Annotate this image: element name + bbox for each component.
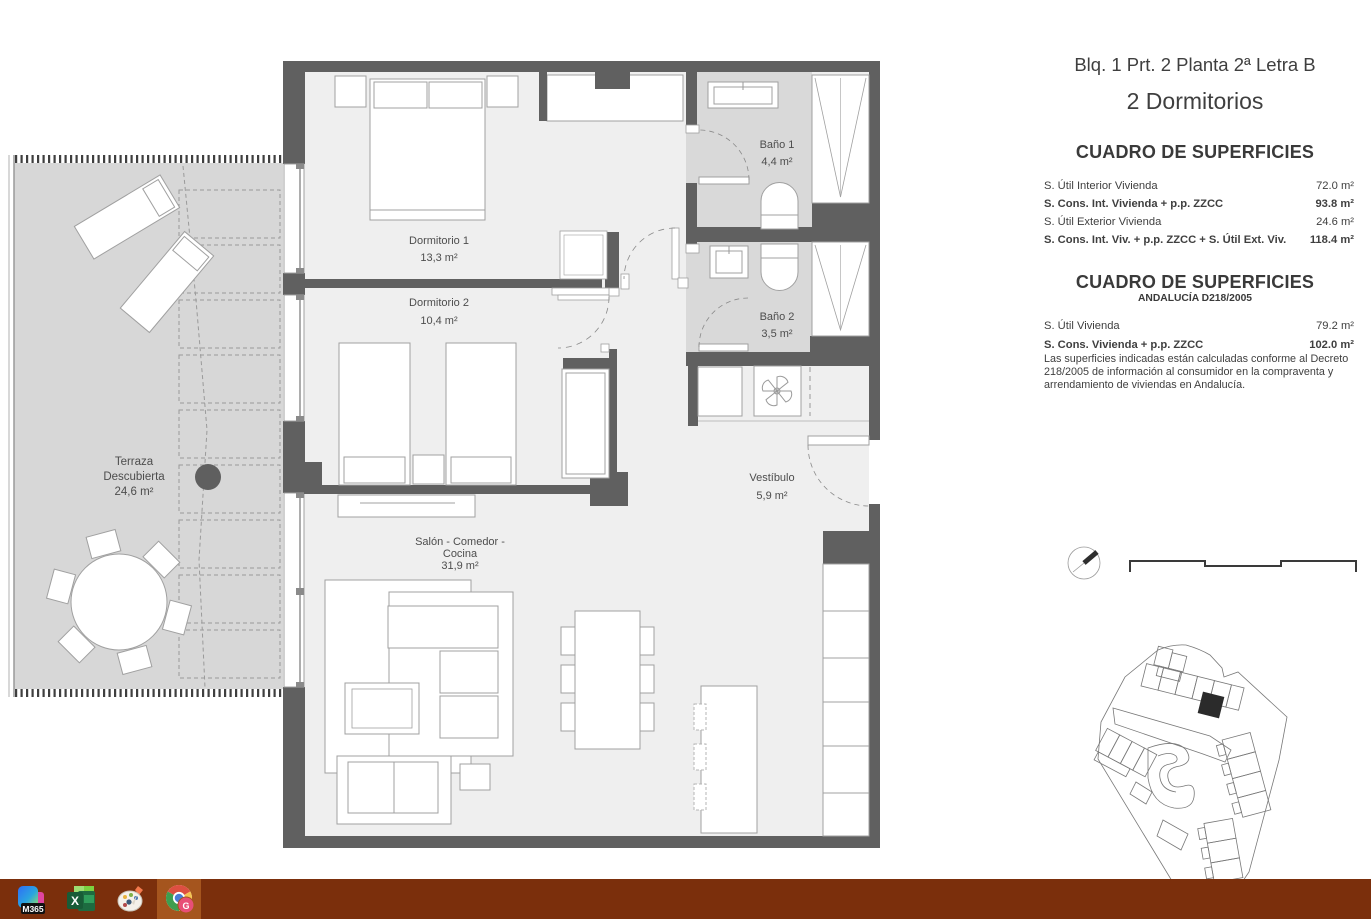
svg-text:24,6 m²: 24,6 m² <box>115 486 154 498</box>
svg-text:3,5 m²: 3,5 m² <box>761 328 793 340</box>
svg-text:5,9 m²: 5,9 m² <box>756 490 788 502</box>
svg-text:Baño 1: Baño 1 <box>760 139 795 151</box>
svg-text:Dormitorio 2: Dormitorio 2 <box>409 297 469 309</box>
svg-text:G: G <box>182 901 189 911</box>
svg-text:10,4 m²: 10,4 m² <box>420 315 458 327</box>
svg-text:Descubierta: Descubierta <box>103 471 165 483</box>
svg-text:Terraza: Terraza <box>115 456 154 468</box>
svg-text:Vestíbulo: Vestíbulo <box>749 472 794 484</box>
svg-text:13,3 m²: 13,3 m² <box>420 252 458 264</box>
svg-text:31,9 m²: 31,9 m² <box>441 560 479 572</box>
svg-text:Baño 2: Baño 2 <box>760 311 795 323</box>
svg-text:Dormitorio 1: Dormitorio 1 <box>409 235 469 247</box>
svg-text:Salón - Comedor -: Salón - Comedor - <box>415 536 505 548</box>
svg-text:4,4 m²: 4,4 m² <box>761 156 793 168</box>
svg-text:Cocina: Cocina <box>443 548 478 560</box>
svg-text:M365: M365 <box>22 904 44 914</box>
svg-text:X: X <box>71 894 79 908</box>
